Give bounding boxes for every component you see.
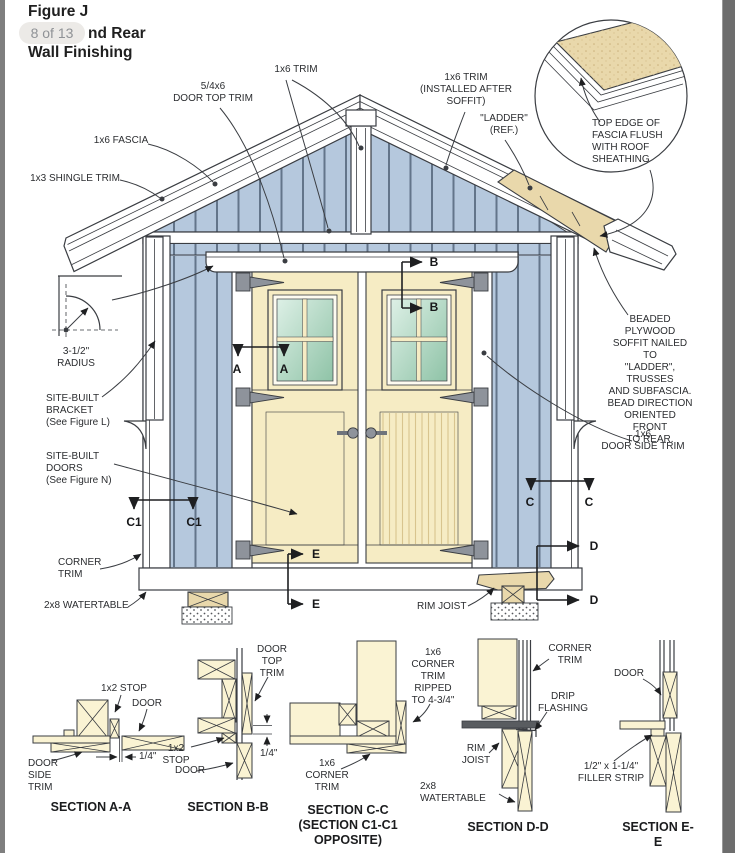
caption-section-dd: SECTION D-D: [467, 820, 548, 835]
label-door-side-trim: 1x6 DOOR SIDE TRIM: [601, 429, 684, 453]
caption-section-aa: SECTION A-A: [51, 800, 132, 815]
marker-c: C: [585, 495, 594, 509]
viewer-edge-right: [722, 0, 735, 853]
fascia-detached: [604, 219, 676, 270]
label-ladder-ref: "LADDER" (REF.): [480, 113, 528, 137]
page-indicator-badge: 8 of 13: [19, 22, 85, 44]
peak-trim-cap: [346, 110, 376, 126]
marker-e: E: [312, 597, 320, 611]
section-ee-drawing: [614, 640, 681, 812]
viewer-edge-left: [0, 0, 5, 853]
marker-a: A: [280, 362, 289, 376]
marker-b: B: [430, 300, 439, 314]
label-dd-drip: DRIP FLASHING: [538, 691, 588, 715]
label-door-top-trim: 5/4x6 DOOR TOP TRIM: [173, 81, 253, 105]
label-cc-trim-ripped: 1x6 CORNER TRIM RIPPED TO 4-3/4": [411, 647, 454, 707]
label-bb-stop: 1x2 STOP: [162, 743, 189, 767]
gravel-left: [182, 607, 232, 624]
gravel-right: [491, 603, 538, 620]
label-2x8-watertable: 2x8 WATERTABLE: [44, 600, 129, 612]
figure-title-line3: Wall Finishing: [28, 44, 132, 62]
label-dd-corner-trim: CORNER TRIM: [548, 643, 591, 667]
label-bb-dim: 1/4": [260, 748, 277, 760]
door-side-trim-left: [232, 255, 252, 568]
label-site-built-doors: SITE-BUILT DOORS (See Figure N): [46, 451, 112, 487]
label-aa-door: DOOR: [132, 698, 162, 710]
figure-page: Figure J 8 of 13 nd Rear Wall Finishing …: [0, 0, 735, 853]
caption-section-ee: SECTION E-E: [620, 820, 697, 850]
label-ee-door: DOOR: [614, 668, 644, 680]
label-site-built-bracket: SITE-BUILT BRACKET (See Figure L): [46, 393, 110, 429]
label-radius: 3-1/2" RADIUS: [57, 346, 95, 370]
label-aa-dim: 1/4": [139, 751, 156, 763]
siding-right: [492, 255, 552, 568]
door-side-trim-right: [472, 255, 492, 568]
marker-c: C: [526, 495, 535, 509]
caption-section-bb: SECTION B-B: [187, 800, 268, 815]
label-1x6-trim-soffit: 1x6 TRIM (INSTALLED AFTER SOFFIT): [420, 72, 512, 108]
radius-detail: [52, 276, 122, 338]
marker-e: E: [312, 547, 320, 561]
marker-a: A: [233, 362, 242, 376]
label-aa-stop: 1x2 STOP: [101, 683, 147, 695]
door-top-trim: [206, 252, 518, 272]
label-aa-side-trim: DOOR SIDE TRIM: [28, 758, 58, 794]
label-detail-note: TOP EDGE OF FASCIA FLUSH WITH ROOF SHEAT…: [592, 118, 663, 166]
label-dd-rim-joist: RIM JOIST: [462, 743, 490, 767]
marker-c1: C1: [126, 515, 141, 529]
peak-trim: [351, 126, 371, 234]
marker-d: D: [590, 539, 599, 553]
section-cc-drawing: [290, 641, 430, 769]
label-corner-trim: CORNER TRIM: [58, 557, 101, 581]
label-rim-joist: RIM JOIST: [417, 601, 466, 613]
label-bb-top-trim: DOOR TOP TRIM: [257, 644, 287, 680]
label-1x6-trim: 1x6 TRIM: [274, 64, 317, 76]
label-dd-watertable: 2x8 WATERTABLE: [420, 781, 486, 805]
label-1x3-shingle-trim: 1x3 SHINGLE TRIM: [30, 173, 120, 185]
figure-title-line1: Figure J: [28, 3, 88, 21]
marker-c1: C1: [186, 515, 201, 529]
label-1x6-fascia: 1x6 FASCIA: [94, 135, 148, 147]
marker-b: B: [430, 255, 439, 269]
caption-section-cc: SECTION C-C (SECTION C1-C1 OPPOSITE): [298, 803, 397, 847]
figure-title-line2: nd Rear: [88, 25, 146, 43]
shed-elevation: [52, 95, 676, 624]
label-ee-filler: 1/2" x 1-1/4" FILLER STRIP: [578, 761, 644, 785]
door-window-right: [382, 290, 456, 390]
label-soffit-note: BEADED PLYWOOD SOFFIT NAILED TO "LADDER"…: [608, 314, 693, 446]
label-cc-trim: 1x6 CORNER TRIM: [305, 758, 348, 794]
marker-d: D: [590, 593, 599, 607]
label-bb-door: DOOR: [175, 765, 205, 777]
